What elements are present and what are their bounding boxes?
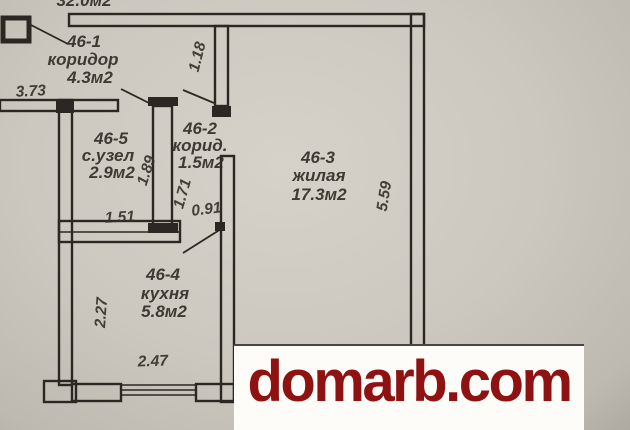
wall-hall-divider-foot [212, 106, 231, 117]
watermark-box: domarb.com [234, 344, 584, 430]
room-46-4-name: кухня [141, 284, 189, 303]
dim-247: 2.47 [136, 352, 169, 370]
wall-hall-living-divider [215, 26, 228, 106]
room-46-2-area: 1.5м2 [178, 153, 224, 172]
room-46-4-area: 5.8м2 [141, 302, 187, 321]
dim-151: 1.51 [104, 208, 135, 227]
dim-189: 1.89 [134, 153, 160, 187]
bathroom-door-swing [121, 89, 151, 104]
dim-559: 5.59 [374, 180, 396, 213]
room-46-1-area: 4.3м2 [66, 68, 113, 87]
wall-entry-stub [3, 18, 29, 41]
room-46-3-name: жилая [292, 166, 346, 185]
small-hall-door-swing [183, 90, 214, 103]
watermark-text: domarb.com [247, 353, 570, 411]
dim-227: 2.27 [92, 296, 111, 330]
dim-091: 0.91 [190, 199, 222, 220]
wall-kitchen-living-divider [221, 156, 234, 402]
room-46-5-area: 2.9м2 [88, 163, 135, 182]
dim-373: 3.73 [15, 82, 46, 101]
wall-top [69, 14, 424, 26]
room-46-1-name: коридор [47, 50, 118, 69]
total-area-partial-label: 32.0м2 [56, 0, 112, 10]
wall-bottom-left-segment [72, 384, 121, 401]
room-46-1-id: 46-1 [66, 32, 101, 51]
kitchen-door-swing [183, 229, 221, 253]
wall-bathroom-divider-cap-top [148, 97, 178, 106]
room-46-4-id: 46-4 [145, 265, 181, 284]
entry-door-swing [31, 25, 68, 44]
room-46-3-id: 46-3 [300, 148, 336, 167]
floorplan-photo: 32.0м2 46-1 коридор 4.3м2 46-5 с.узел 2.… [0, 0, 630, 430]
room-46-3-area: 17.3м2 [291, 185, 347, 204]
dim-118: 1.18 [186, 40, 210, 74]
wall-bottom-right-segment [196, 384, 234, 401]
